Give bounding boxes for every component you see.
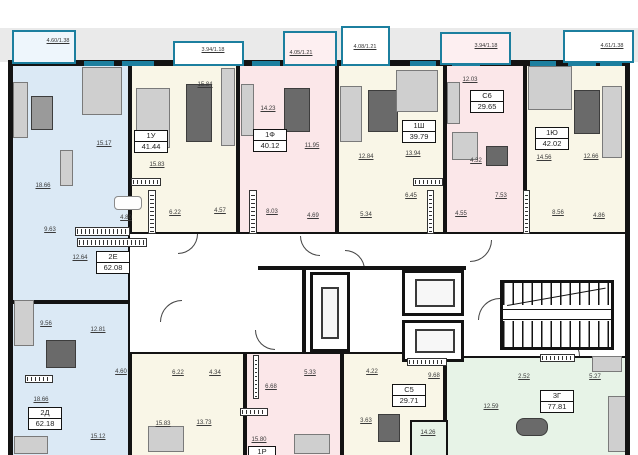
apartment-type: 1Ф (254, 130, 286, 141)
fixture-strip-icon (523, 190, 530, 234)
apartment-label: 1Ю 42.02 (535, 127, 569, 150)
fixture-strip-icon (540, 354, 575, 362)
room-area-label: 9.68 (428, 373, 440, 379)
apartment-area: 42.02 (536, 139, 568, 149)
elevator-car-icon (415, 279, 455, 307)
room-area-label: 4.86 (593, 213, 605, 219)
apartment-type: 2Е (97, 252, 129, 263)
bed-icon (396, 70, 438, 112)
room-area-label: 18.66 (33, 397, 48, 403)
room-area-label: 15.84 (197, 82, 212, 88)
balcony-area-label: 4.05/1.21 (290, 50, 313, 56)
elevator-car-icon (321, 287, 339, 339)
bed-icon (528, 66, 572, 110)
door-arc (300, 236, 320, 256)
outer-wall-right (625, 60, 630, 455)
apartment-label: С5 29.71 (392, 384, 426, 407)
room-area-label: 4.34 (209, 370, 221, 376)
room-area-label: 4.55 (455, 211, 467, 217)
stairwell (500, 280, 614, 350)
kitchen-counter-icon (452, 132, 478, 160)
sofa-icon (14, 436, 48, 454)
room-area-label: 9.63 (44, 227, 56, 233)
fixture-strip-icon (77, 238, 147, 247)
window-icon (122, 61, 154, 66)
apartment-type: 3Г (541, 391, 573, 402)
room-area-label: 6.68 (265, 384, 277, 390)
wardrobe-icon (60, 150, 73, 186)
room-area-label: 18.66 (35, 183, 50, 189)
fixture-strip-icon (131, 178, 161, 186)
apartment-type: 1Ю (536, 128, 568, 139)
apartment-area: 41.44 (135, 142, 167, 152)
room-area-label: 9.56 (40, 321, 52, 327)
window-icon (410, 61, 436, 66)
bed-icon (294, 434, 330, 454)
kitchen-counter-icon (340, 86, 362, 142)
apartment-label: 1Ф 40.12 (253, 129, 287, 152)
balcony-area-label: 4.08/1.21 (354, 44, 377, 50)
dining-table-icon (186, 84, 212, 142)
outer-wall-left (8, 60, 13, 455)
apartment-type: 1У (135, 131, 167, 142)
room-area-label: 3.63 (360, 418, 372, 424)
window-icon (84, 61, 114, 66)
balcony-area-label: 4.60/1.38 (47, 38, 70, 44)
fixture-strip-icon (75, 227, 130, 236)
dining-table-icon (368, 90, 398, 132)
fixture-strip-icon (25, 375, 53, 383)
balcony-area-label: 3.94/1.18 (202, 47, 225, 53)
room-area-label: 12.59 (483, 404, 498, 410)
kitchen-counter-icon (608, 396, 626, 452)
apartment-area: 29.65 (471, 102, 503, 112)
window-icon (252, 61, 280, 66)
kitchen-counter-icon (14, 300, 34, 346)
apartment-area: 77.81 (541, 402, 573, 412)
fixture-strip-icon (253, 355, 259, 399)
room-area-label: 15.12 (90, 434, 105, 440)
bathtub-icon (114, 196, 142, 210)
stair-landing (503, 309, 611, 320)
sofa-icon (13, 82, 28, 138)
apartment-area: 29.71 (393, 396, 425, 406)
room-area-label: 4.22 (366, 369, 378, 375)
wardrobe-icon (447, 82, 460, 124)
room-area-label: 5.34 (360, 212, 372, 218)
apartment-label: С6 29.65 (470, 90, 504, 113)
room-area-label: 6.22 (169, 210, 181, 216)
fixture-strip-icon (407, 358, 447, 366)
door-arc (478, 298, 500, 320)
room-area-label: 14.56 (536, 155, 551, 161)
room-area-label: 15.80 (251, 437, 266, 443)
elevator-shaft (402, 270, 464, 316)
fixture-strip-icon (413, 178, 443, 186)
balcony-3 (283, 31, 337, 66)
room-area-label: 12.03 (462, 77, 477, 83)
room-area-label: 4.60 (115, 369, 127, 375)
room-area-label: 15.83 (155, 421, 170, 427)
apartment-type: С6 (471, 91, 503, 102)
apartment-type: 1Р (249, 447, 275, 455)
window-icon (530, 61, 556, 66)
door-arc (160, 300, 182, 322)
room-area-label: 14.26 (420, 430, 435, 436)
apartment-label: 3Г 77.81 (540, 390, 574, 413)
room-area-label: 6.45 (405, 193, 417, 199)
room-area-label: 2.52 (518, 374, 530, 380)
room-area-label: 12.66 (583, 154, 598, 160)
apartment-type: 1Ш (403, 121, 435, 132)
apartment-label: 2Е 62.08 (96, 251, 130, 274)
room-area-label: 4.32 (470, 158, 482, 164)
room-area-label: 5.33 (304, 370, 316, 376)
room-area-label: 4.57 (214, 208, 226, 214)
floor-plan: 4.60/1.38 3.94/1.18 4.05/1.21 4.08/1.21 … (0, 0, 638, 455)
room-area-label: 15.83 (149, 162, 164, 168)
apartment-type: С5 (393, 385, 425, 396)
kitchen-counter-icon (221, 68, 235, 146)
room-area-label: 14.23 (260, 106, 275, 112)
room-area-label: 12.64 (72, 255, 87, 261)
room-area-label: 12.84 (358, 154, 373, 160)
room-area-label: 7.53 (495, 193, 507, 199)
room-area-label: 8.03 (266, 209, 278, 215)
apartment-area: 62.08 (97, 263, 129, 273)
elevator-shaft (402, 320, 464, 362)
apartment-label: 2Д 62.18 (28, 407, 62, 430)
balcony-area-label: 4.61/1.38 (601, 43, 624, 49)
fixture-strip-icon (427, 190, 434, 234)
core-wall-left (302, 268, 306, 354)
balcony-2 (173, 41, 244, 66)
door-arc (470, 240, 492, 262)
bed-icon (592, 356, 622, 372)
dining-table-icon (284, 88, 310, 132)
coffee-table-icon (31, 96, 53, 130)
stair-treads-icon (503, 321, 611, 347)
desk-icon (486, 146, 508, 166)
apartment-area: 62.18 (29, 419, 61, 429)
room-area-label: 13.73 (196, 420, 211, 426)
room-area-label: 13.94 (405, 151, 420, 157)
elevator-shaft (310, 272, 350, 352)
apartment-area: 39.79 (403, 132, 435, 142)
bed-icon (148, 426, 184, 452)
room-area-label: 4.69 (307, 213, 319, 219)
kitchen-counter-icon (602, 86, 622, 158)
apartment-label: 1У 41.44 (134, 130, 168, 153)
apartment-3g-annex (410, 420, 448, 455)
apartment-type: 2Д (29, 408, 61, 419)
apartment-label: 1Ш 39.79 (402, 120, 436, 143)
room-area-label: 11.95 (305, 143, 320, 149)
room-area-label: 15.17 (96, 141, 111, 147)
dining-table-icon (46, 340, 76, 368)
apartment-label: 1Р (248, 446, 276, 455)
balcony-1 (12, 30, 76, 64)
fixture-strip-icon (240, 408, 268, 416)
balcony-area-label: 3.94/1.18 (475, 43, 498, 49)
apartment-area: 40.12 (254, 141, 286, 151)
room-area-label: 5.27 (589, 374, 601, 380)
door-arc (178, 234, 198, 254)
desk-icon (378, 414, 400, 442)
room-area-label: 12.81 (90, 327, 105, 333)
room-area-label: 8.56 (552, 210, 564, 216)
bed-icon (82, 67, 122, 115)
round-table-icon (516, 418, 548, 436)
fixture-strip-icon (249, 190, 257, 234)
elevator-car-icon (415, 329, 455, 353)
room-area-label: 4.80 (120, 215, 132, 221)
fixture-strip-icon (148, 190, 156, 234)
door-arc (255, 330, 275, 350)
dining-table-icon (574, 90, 600, 134)
room-area-label: 6.22 (172, 370, 184, 376)
